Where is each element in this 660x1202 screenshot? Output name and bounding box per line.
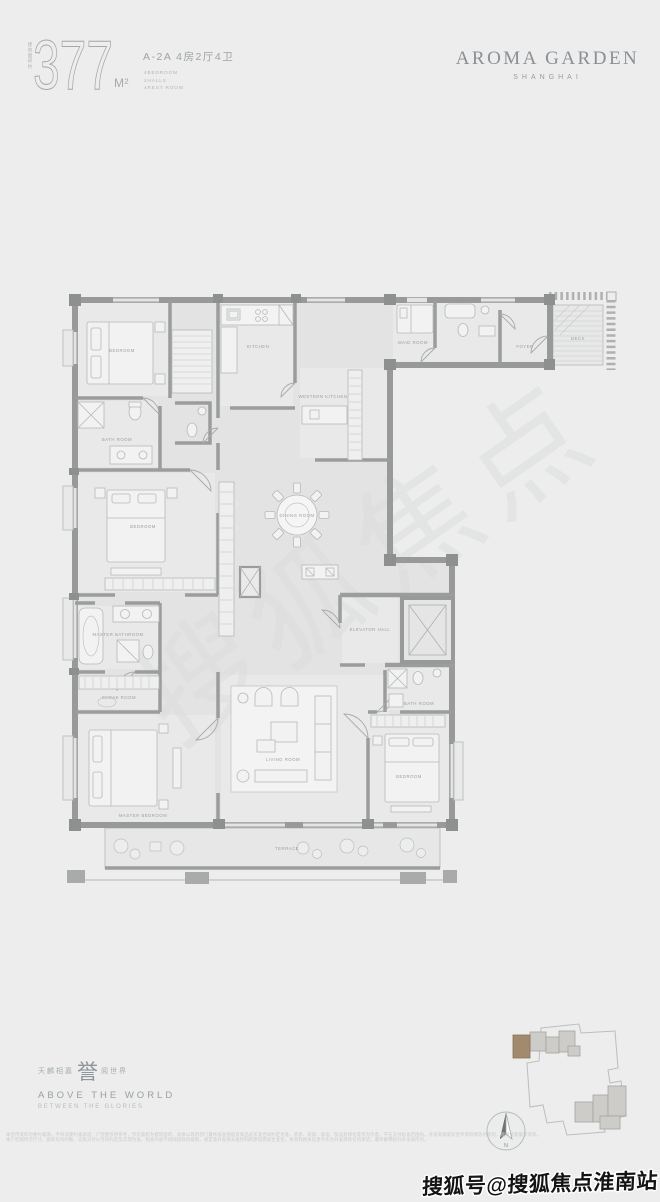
- slogan-english: ABOVE THE WORLD: [38, 1090, 156, 1101]
- parapet: [67, 870, 457, 884]
- disclaimer-line-2: 本户型图所示尺寸、面积均为约数，实际交付以合同约定及实测为准。相关内容不排除因政…: [6, 1137, 656, 1142]
- floor-plan: 搜狐焦点: [55, 278, 630, 910]
- bed-1: [87, 322, 165, 384]
- slogan-chinese: 天麟相嘉 誉 阅世界: [38, 1056, 156, 1086]
- wardrobe-2: [219, 482, 234, 636]
- elevator-shaft: [402, 598, 453, 662]
- room-label: DINING ROOM: [279, 513, 314, 518]
- area-unit: M²: [114, 76, 129, 90]
- spec-bedroom: 4BEDROOM: [144, 70, 184, 78]
- room-label: BEDROOM: [109, 348, 135, 353]
- building-cluster-north: [530, 1031, 580, 1056]
- room-label: FOYER: [516, 344, 533, 349]
- room-label: BATH ROOM: [404, 701, 434, 706]
- sideboard: [302, 565, 338, 579]
- disclaimer: 本宣传资料为要约邀请，不构成要约或承诺。户型图仅供参考，所示面积为建筑面积，具体…: [6, 1132, 656, 1143]
- spec-restroom: 4REST ROOM: [144, 85, 184, 93]
- room-label: MASTER BEDROOM: [119, 813, 167, 818]
- brand-logo: AROMA GARDEN SHANGHAI: [450, 48, 645, 81]
- room-label: TERRACE: [275, 846, 299, 851]
- duct-shaft: [240, 567, 260, 597]
- building-cluster-south: [575, 1086, 626, 1129]
- compass-label: N: [504, 1143, 508, 1149]
- room-label: BEDROOM: [396, 774, 422, 779]
- highlighted-unit: [513, 1035, 530, 1058]
- room-label: LIVING ROOM: [266, 757, 300, 762]
- sohu-watermark: 搜狐号@搜狐焦点淮南站: [421, 1165, 658, 1201]
- wardrobe-1: [172, 330, 212, 393]
- living-room-furniture: [231, 686, 337, 792]
- slogan-block: 天麟相嘉 誉 阅世界 ABOVE THE WORLD BETWEEN THE G…: [38, 1056, 156, 1110]
- room-label: BATH ROOM: [102, 437, 132, 442]
- deck-area: [549, 292, 616, 370]
- room-label: MAID ROOM: [398, 340, 428, 345]
- room-label: KITCHEN: [247, 344, 269, 349]
- area-value: 377: [33, 35, 113, 95]
- area-number-graphic: 377: [31, 35, 117, 95]
- slogan-cn-big-char: 誉: [77, 1056, 98, 1086]
- unit-type: A-2A 4房2厅4卫: [143, 49, 234, 64]
- room-label: CLOAK ROOM: [102, 695, 136, 700]
- brand-name: AROMA GARDEN: [450, 48, 645, 70]
- spec-halls: 2HALLS: [144, 78, 184, 86]
- room-label: MASTER BATHROOM: [92, 632, 143, 637]
- page: 建筑面积约 377 M² A-2A 4房2厅4卫 4BEDROOM 2HALLS…: [0, 0, 660, 1202]
- maid-bed: [397, 305, 433, 333]
- compass: N: [483, 1108, 529, 1154]
- slogan-cn-left: 天麟相嘉: [38, 1066, 74, 1076]
- slogan-cn-right: 阅世界: [101, 1066, 128, 1076]
- room-label: DECK: [571, 336, 585, 341]
- brand-city: SHANGHAI: [450, 74, 645, 81]
- unit-specs: 4BEDROOM 2HALLS 4REST ROOM: [144, 70, 184, 93]
- room-label: WESTERN KITCHEN: [298, 394, 347, 399]
- slogan-english-sub: BETWEEN THE GLORIES: [38, 1104, 156, 1110]
- terrace-area: [105, 828, 440, 868]
- room-label: BEDROOM: [130, 524, 156, 529]
- room-label: ELEVATOR HALL: [350, 627, 391, 632]
